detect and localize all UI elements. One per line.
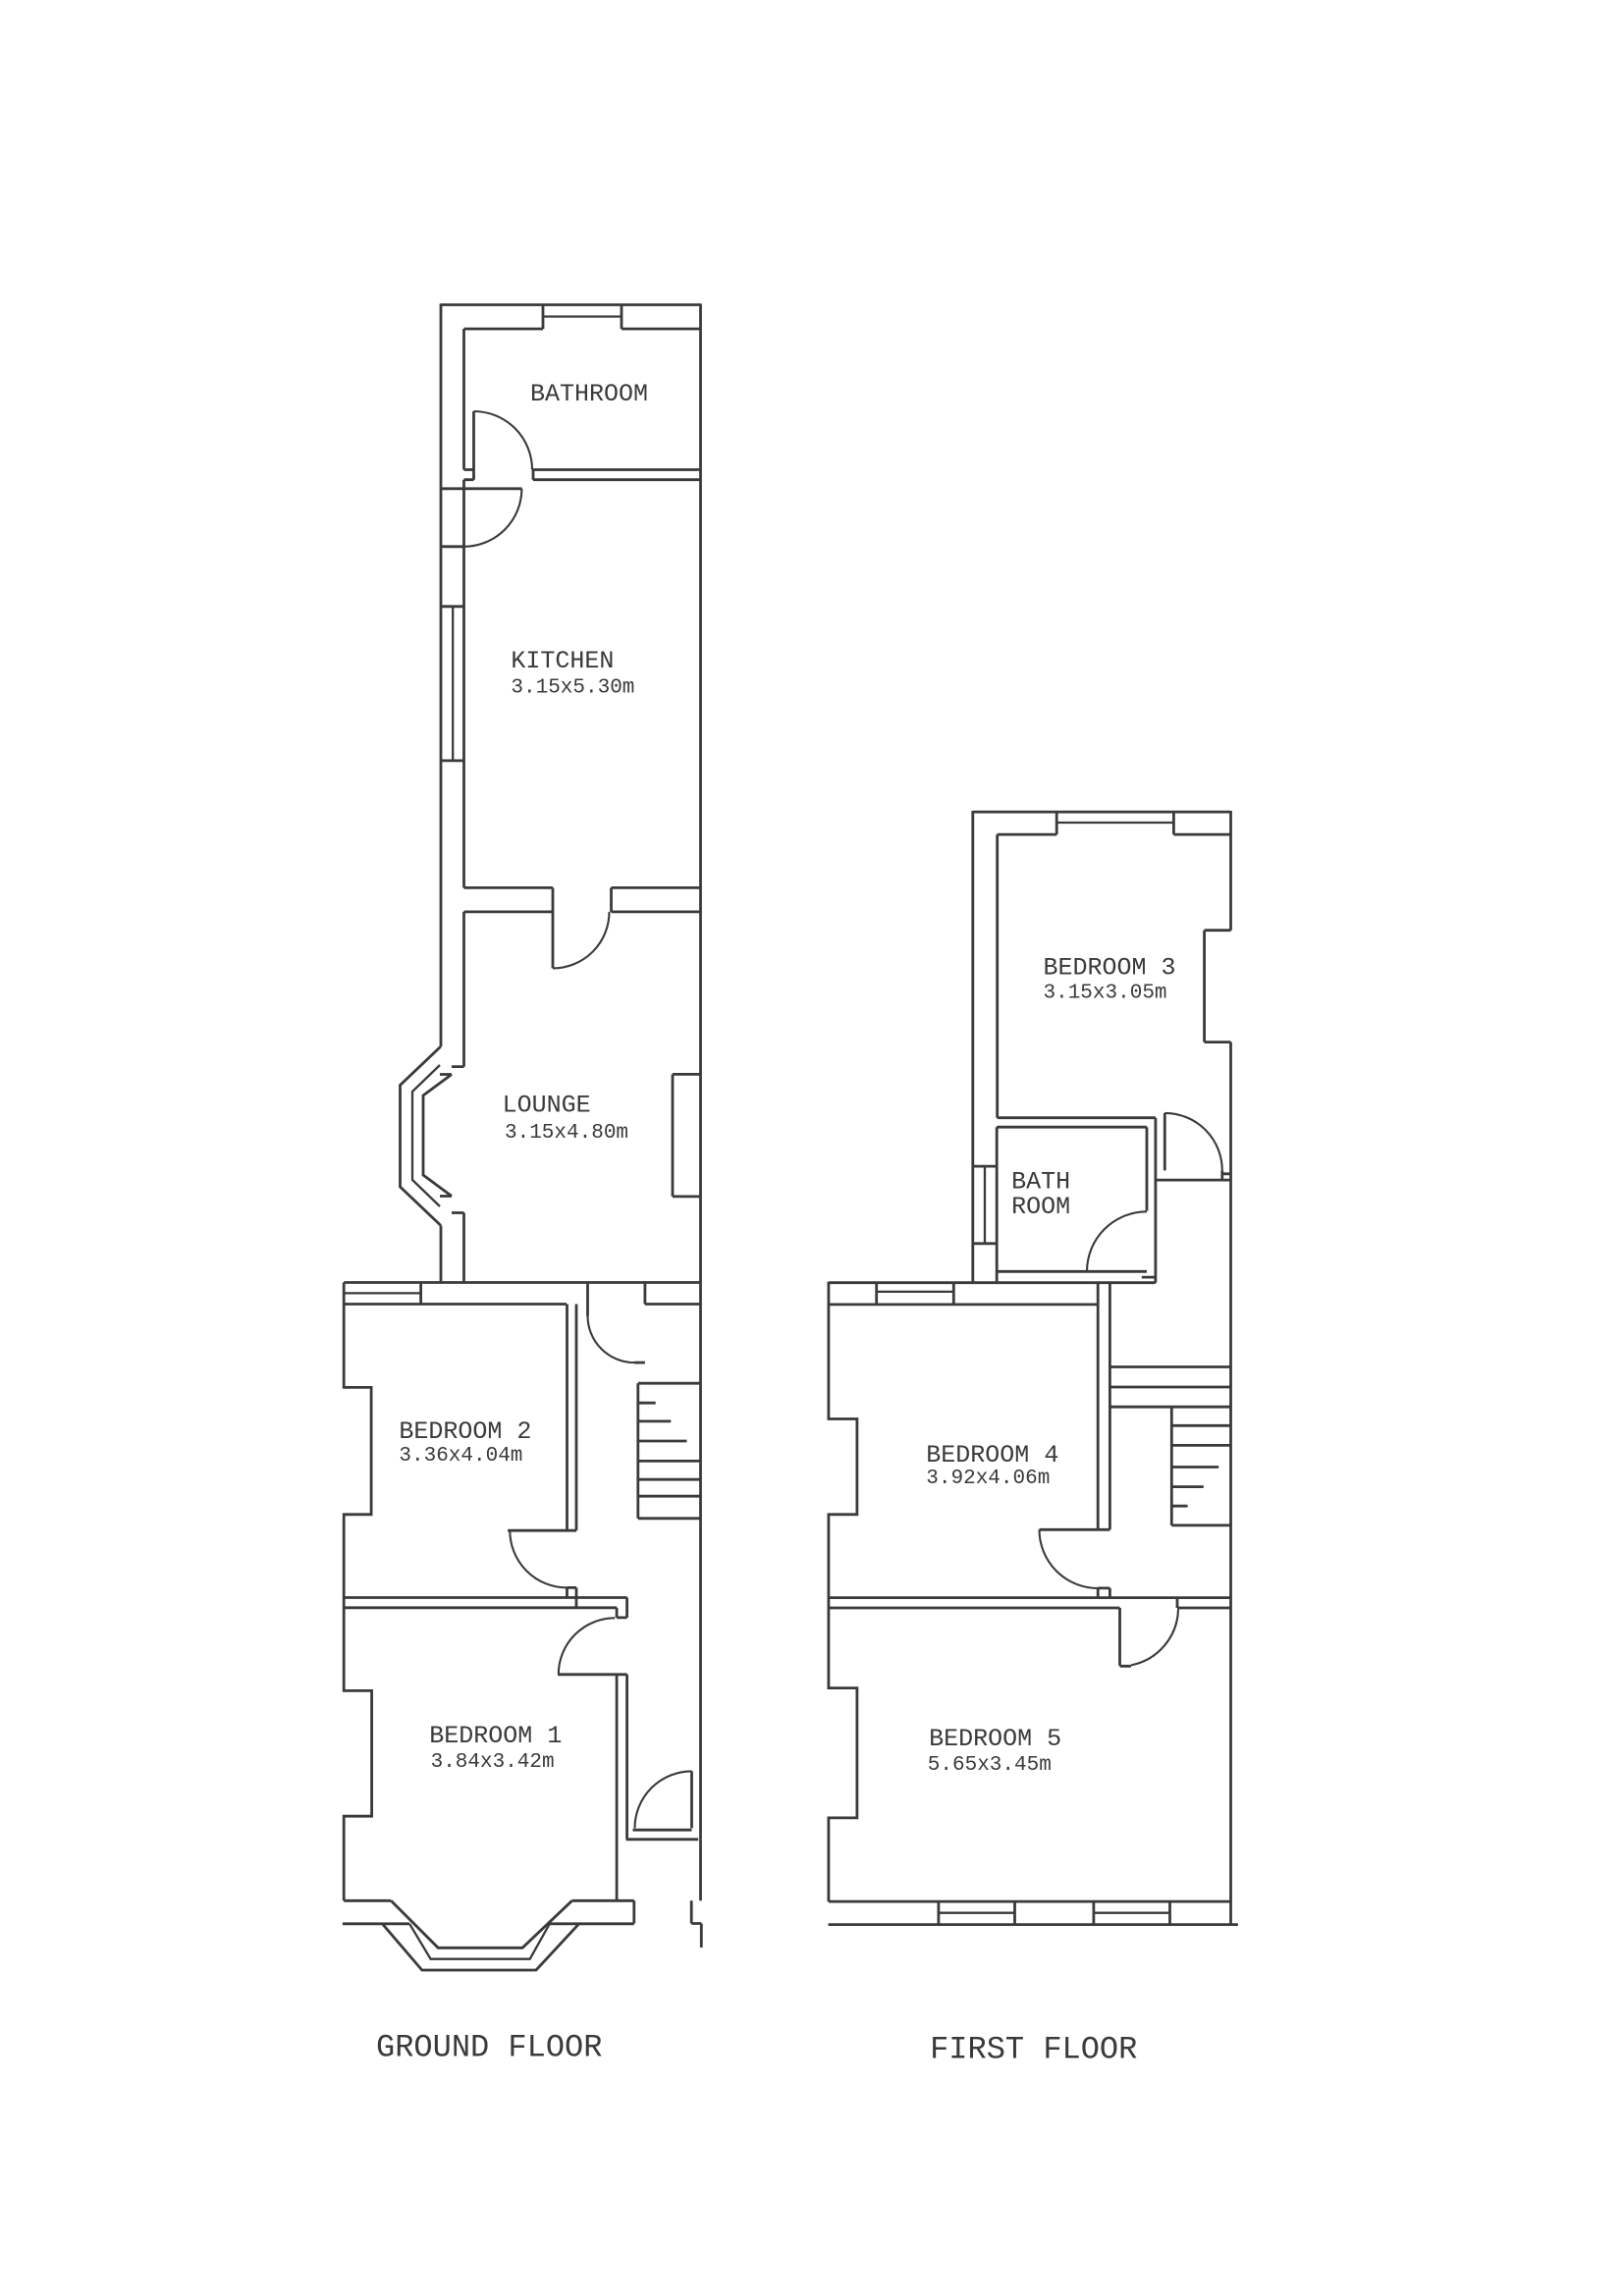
svg-text:FIRST FLOOR: FIRST FLOOR	[930, 2032, 1137, 2068]
svg-text:3.15x3.05m: 3.15x3.05m	[1044, 983, 1167, 1005]
svg-text:BEDROOM 3: BEDROOM 3	[1044, 954, 1176, 983]
svg-text:3.15x4.80m: 3.15x4.80m	[505, 1122, 628, 1145]
svg-text:BATHROOM: BATHROOM	[530, 380, 648, 408]
svg-text:5.65x3.45m: 5.65x3.45m	[928, 1754, 1052, 1777]
svg-text:KITCHEN: KITCHEN	[511, 647, 614, 675]
svg-text:BEDROOM 4: BEDROOM 4	[926, 1441, 1058, 1469]
svg-text:BEDROOM 1: BEDROOM 1	[429, 1722, 562, 1750]
svg-text:ROOM: ROOM	[1011, 1193, 1070, 1221]
svg-text:BEDROOM 5: BEDROOM 5	[929, 1725, 1061, 1753]
svg-text:3.15x5.30m: 3.15x5.30m	[511, 677, 634, 700]
svg-text:GROUND FLOOR: GROUND FLOOR	[376, 2030, 602, 2066]
svg-text:BEDROOM 2: BEDROOM 2	[399, 1417, 531, 1446]
svg-text:3.84x3.42m: 3.84x3.42m	[431, 1751, 555, 1774]
svg-text:LOUNGE: LOUNGE	[503, 1092, 591, 1120]
svg-text:3.36x4.04m: 3.36x4.04m	[399, 1445, 522, 1468]
svg-text:3.92x4.06m: 3.92x4.06m	[926, 1468, 1050, 1490]
